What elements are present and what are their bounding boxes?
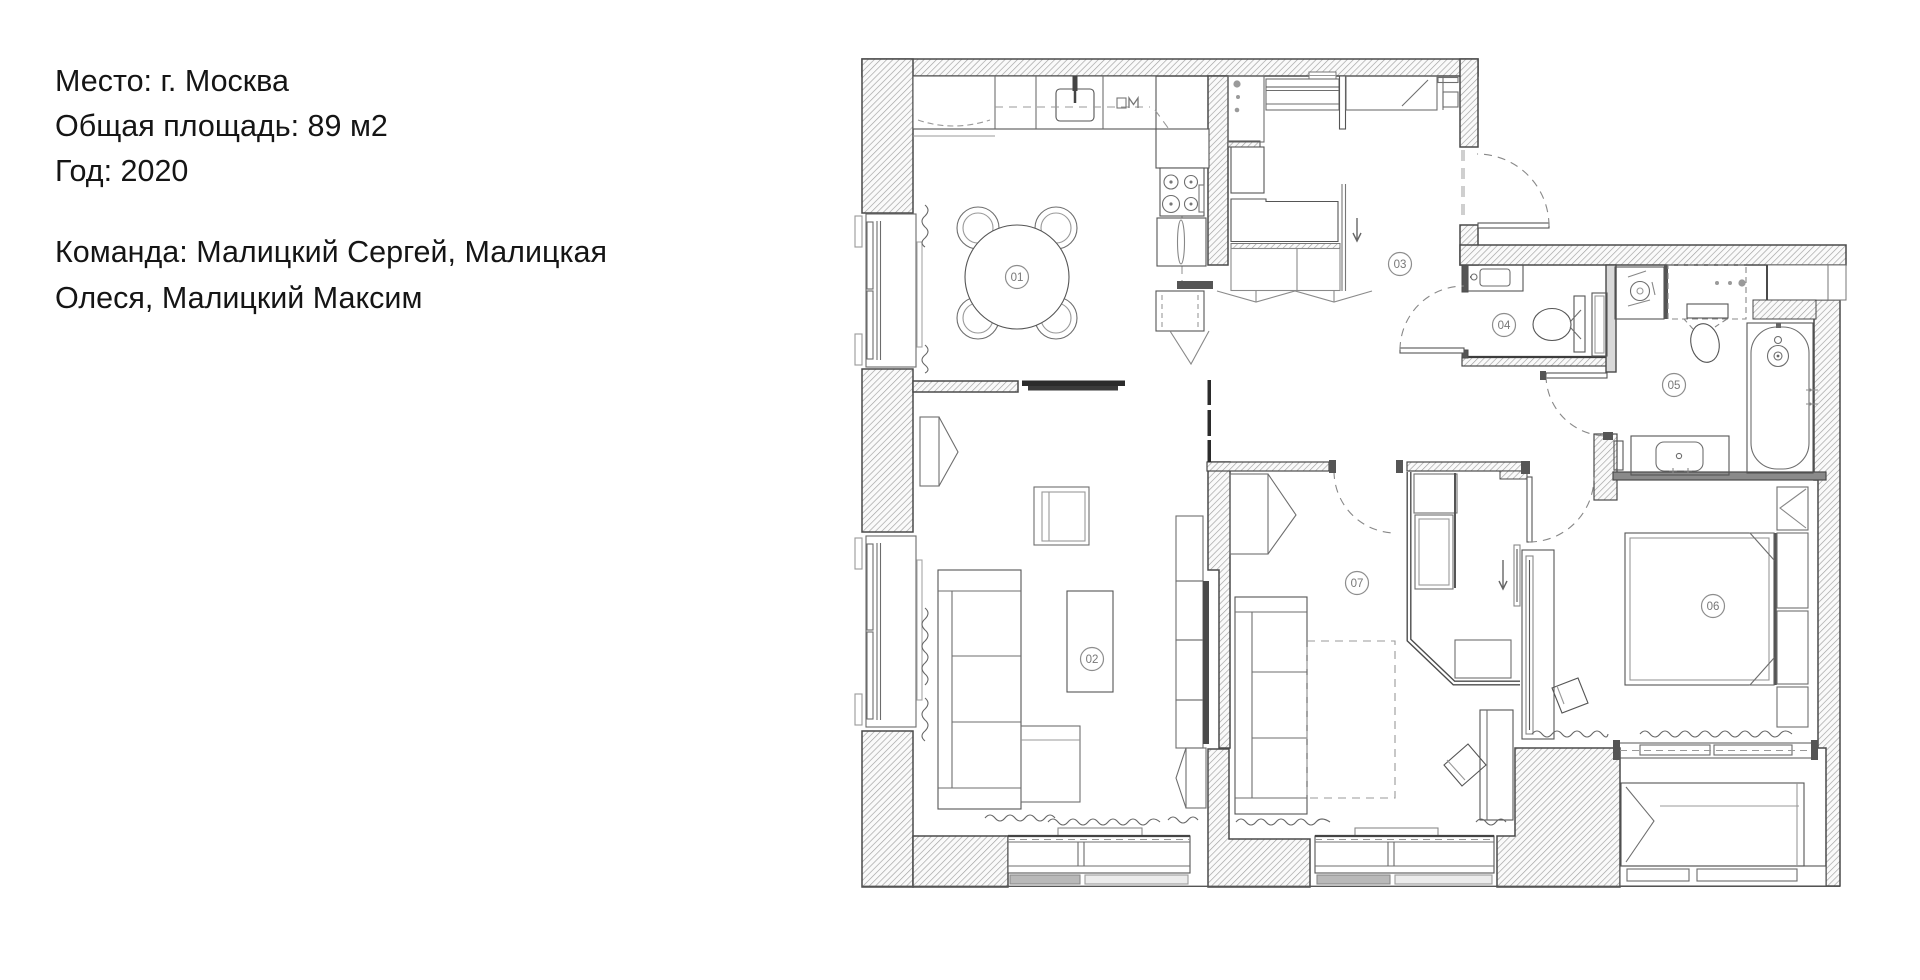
svg-text:02: 02 [1086,654,1099,666]
svg-text:07: 07 [1351,578,1364,590]
svg-text:03: 03 [1394,259,1407,271]
svg-text:05: 05 [1668,380,1681,392]
svg-text:04: 04 [1498,320,1511,332]
svg-text:01: 01 [1011,272,1024,284]
svg-text:06: 06 [1707,601,1720,613]
